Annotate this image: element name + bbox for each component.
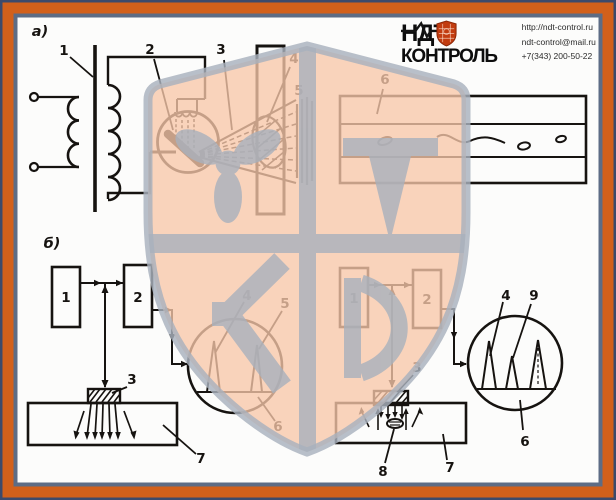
label-bl-7: 7	[196, 451, 205, 467]
contact-phone: +7(343) 200-50-22	[522, 49, 609, 64]
section-b-label: б)	[44, 236, 61, 252]
callout-a3: 3	[216, 42, 225, 58]
figure-canvas: а)	[0, 0, 616, 500]
contact-block: http://ndt-control.ru ndt-control@mail.r…	[522, 20, 609, 66]
contact-url: http://ndt-control.ru	[522, 20, 609, 35]
label-bl-3: 3	[127, 372, 136, 388]
section-a-label: а)	[32, 24, 48, 40]
watermarked-ndt-figure: а)	[0, 0, 616, 500]
cross-horizontal-bar	[148, 234, 466, 253]
label-br-9: 9	[529, 288, 538, 304]
label-bl-2: 2	[133, 290, 142, 306]
ndt-shield-emblem-icon	[435, 20, 458, 47]
label-br-8: 8	[378, 464, 387, 480]
label-br-7: 7	[445, 460, 454, 476]
label-br-6: 6	[520, 434, 529, 450]
brand-name-bottom: КОНТРОЛЬ	[401, 47, 515, 66]
terminal-bottom	[30, 163, 38, 171]
contact-email: ndt-control@mail.ru	[522, 35, 609, 50]
logo-block: НДТ КОНТРОЛЬ http://ndt-control.ru ndt-c…	[401, 20, 609, 66]
callout-a1: 1	[59, 43, 68, 59]
label-bl-1: 1	[61, 290, 70, 306]
terminal-top	[30, 93, 38, 101]
label-br-4: 4	[501, 288, 510, 304]
callout-a2: 2	[145, 42, 154, 58]
